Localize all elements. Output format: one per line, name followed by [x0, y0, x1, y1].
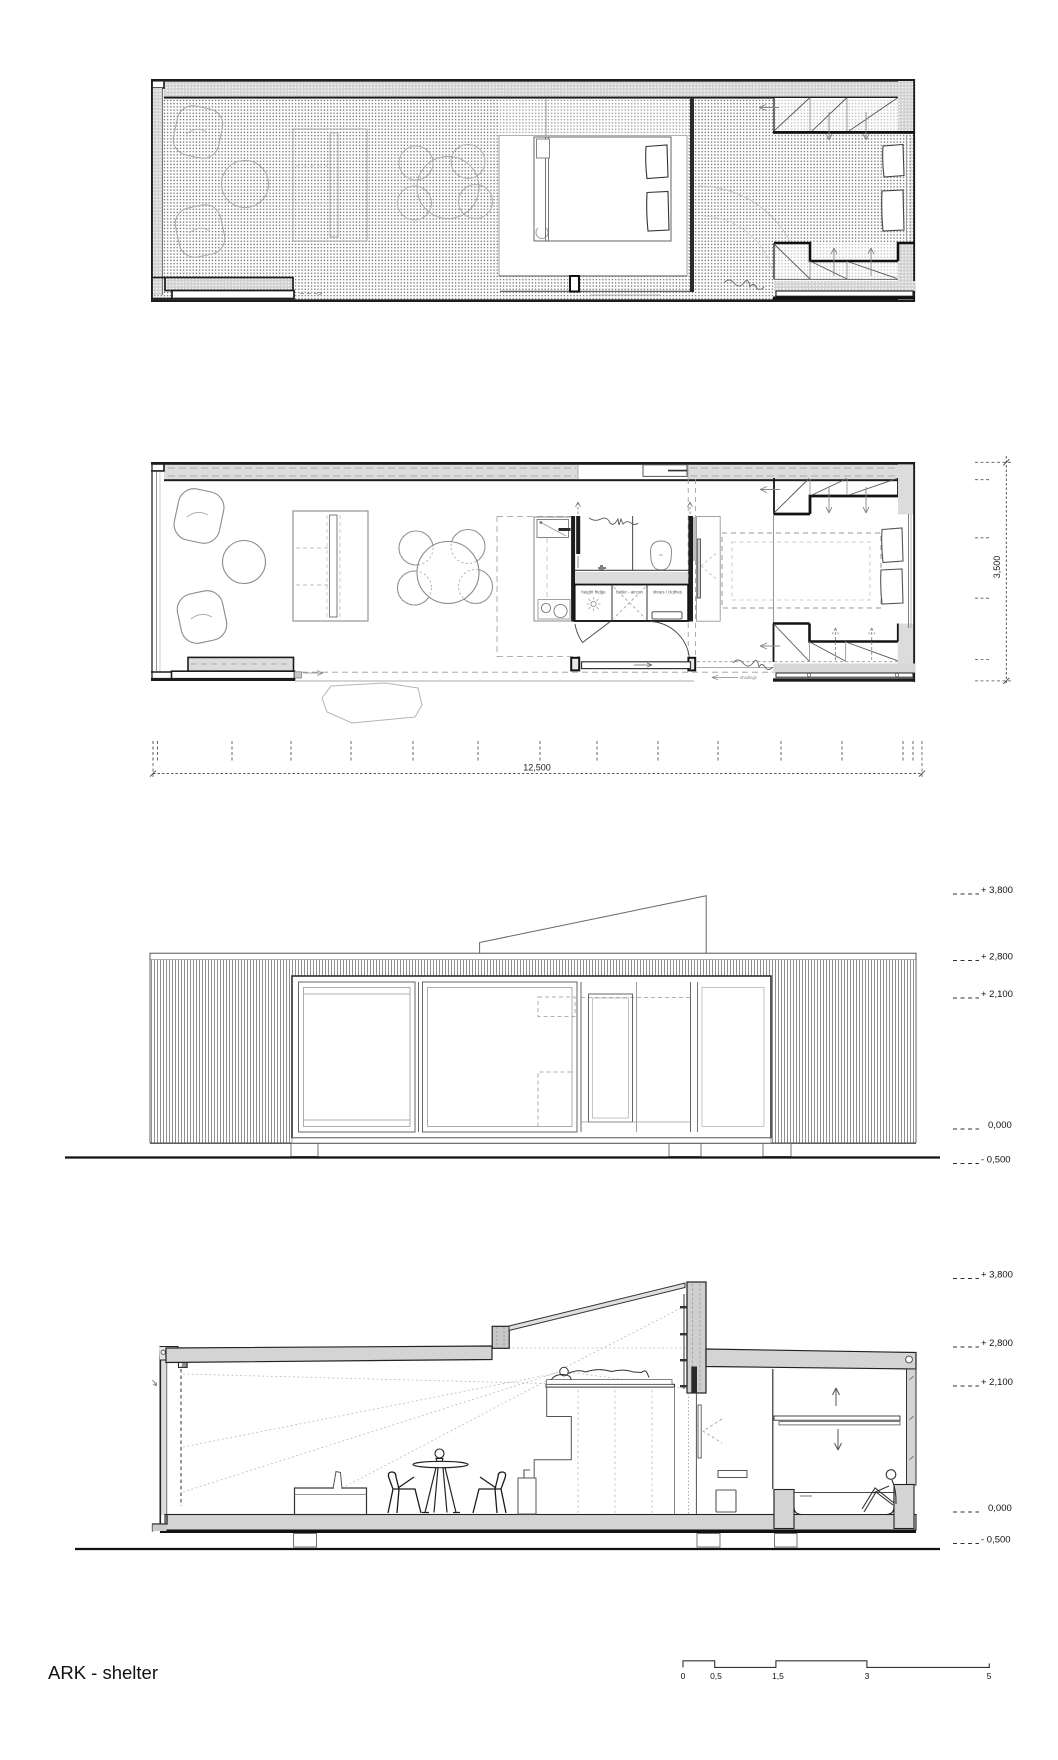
svg-text:0,000: 0,000	[988, 1503, 1012, 1514]
svg-text:0,000: 0,000	[988, 1120, 1012, 1131]
svg-text:+ 2,800: + 2,800	[981, 1338, 1013, 1349]
svg-text:ARK - shelter: ARK - shelter	[48, 1662, 158, 1683]
svg-text:- 0,500: - 0,500	[981, 1155, 1011, 1166]
svg-text:shoes / clothes: shoes / clothes	[653, 590, 683, 595]
svg-text:3,500: 3,500	[992, 556, 1002, 579]
svg-text:0: 0	[681, 1671, 686, 1681]
svg-text:0,5: 0,5	[710, 1671, 722, 1681]
svg-text:+ 2,100: + 2,100	[981, 989, 1013, 1000]
svg-text:1,5: 1,5	[772, 1671, 784, 1681]
svg-text:+ 3,800: + 3,800	[981, 885, 1013, 896]
svg-text:3: 3	[865, 1671, 870, 1681]
svg-text:wc: wc	[659, 553, 664, 557]
svg-text:height fridge: height fridge	[581, 590, 606, 595]
svg-text:shadings: shadings	[740, 675, 757, 680]
svg-text:- 0,500: - 0,500	[981, 1535, 1011, 1546]
svg-text:+ 2,800: + 2,800	[981, 952, 1013, 963]
svg-text:+ 3,800: + 3,800	[981, 1270, 1013, 1281]
svg-text:12,500: 12,500	[523, 763, 551, 773]
svg-text:5: 5	[987, 1671, 992, 1681]
svg-text:+ 2,100: + 2,100	[981, 1377, 1013, 1388]
svg-text:boiler - aircon: boiler - aircon	[616, 590, 643, 595]
